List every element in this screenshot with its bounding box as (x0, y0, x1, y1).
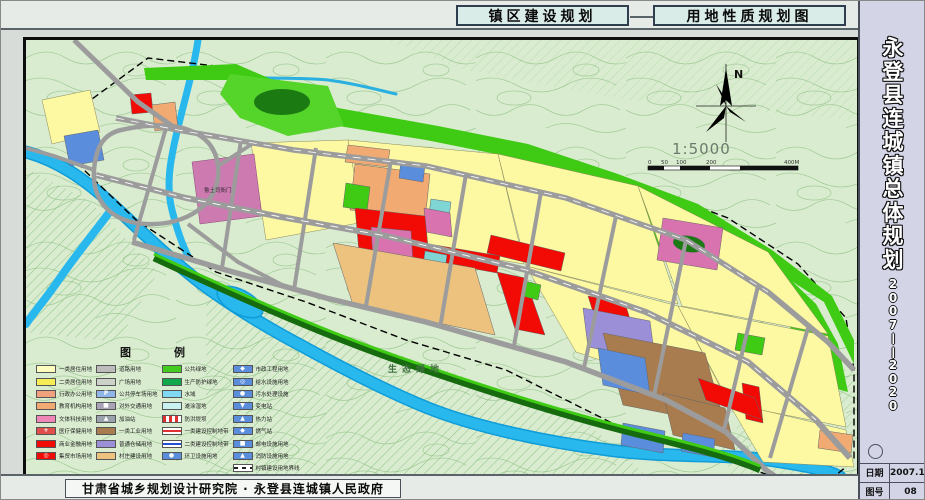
legend-label: 防洪堤坝 (185, 415, 207, 423)
legend-label: 污水处理设施 (256, 390, 289, 398)
historic-site-label: 鲁土司衙门 (204, 186, 232, 194)
footer-strip: 甘肃省城乡规划设计研究院 · 永登县连城镇人民政府 (1, 474, 858, 500)
scale-tick: 400M (784, 160, 799, 166)
legend-swatch: P (96, 390, 116, 398)
scale-tick: 100 (676, 160, 687, 166)
legend-item: ▲加油站 (96, 413, 158, 425)
vertical-title-char: 总 (883, 178, 904, 202)
legend-label: 加油站 (119, 415, 136, 423)
eco-green-label: 生态绿地 (388, 363, 444, 375)
header-strip: 镇区建设规划 用地性质规划图 (1, 1, 858, 30)
legend-swatch (96, 378, 116, 386)
legend-columns: 一类居住用地二类居住用地行政办公用地教育机构用地文体科技用地+医疗保健用地商业金… (36, 363, 312, 475)
legend-column: 公共绿地生产防护绿地水域滩涂湿地防洪堤坝一类建设控制地带二类建设控制地带●环卫设… (162, 363, 229, 475)
legend-label: 热力站 (256, 415, 273, 423)
legend-swatch (96, 365, 116, 373)
north-label: N (734, 68, 743, 81)
vertical-plan-period: 2007——2020 (860, 278, 925, 413)
legend-item: ▼变电站 (233, 400, 300, 412)
legend-label: 公共绿地 (185, 365, 207, 373)
legend-label: 行政办公用地 (59, 390, 92, 398)
legend-item: 生产防护绿地 (162, 375, 229, 387)
vertical-title-char: 永 (883, 37, 904, 61)
legend-item: 二类建设控制地带 (162, 437, 229, 449)
legend-item: 村镇建设用地界线 (233, 462, 300, 474)
legend-item: 二类居住用地 (36, 375, 92, 387)
legend-item: ◆市政工程用地 (233, 363, 300, 375)
legend-swatch (162, 440, 182, 448)
legend-swatch (96, 452, 116, 460)
legend-label: 二类建设控制地带 (185, 440, 229, 448)
legend-item: 普通仓储用地 (96, 437, 158, 449)
legend-column: 道路用地广场用地P公共停车场用地■对外交通用地▲加油站一类工业用地普通仓储用地村… (96, 363, 158, 475)
legend-label: 消防设施用地 (256, 452, 289, 460)
legend-label: 文体科技用地 (59, 415, 92, 423)
sheet-title-left: 镇区建设规划 (456, 5, 629, 26)
legend-item: 文体科技用地 (36, 413, 92, 425)
legend-swatch (36, 390, 56, 398)
seal-icon (868, 444, 883, 459)
legend-swatch (162, 427, 182, 435)
legend-item: ◆燃气站 (233, 425, 300, 437)
legend-label: 给水设施用地 (256, 378, 289, 386)
legend-swatch: ▼ (233, 402, 253, 410)
legend-swatch (162, 378, 182, 386)
vertical-period-char: — (886, 346, 900, 358)
legend-label: 水域 (185, 390, 196, 398)
legend-item: 防洪堤坝 (162, 413, 229, 425)
legend-label: 变电站 (256, 402, 273, 410)
vertical-period-char: 0 (889, 400, 897, 414)
legend-item: 商业金融用地 (36, 437, 92, 449)
legend-label: 普通仓储用地 (119, 440, 152, 448)
legend-label: 邮电设施用地 (256, 440, 289, 448)
legend-swatch (36, 415, 56, 423)
scale-tick: 50 (661, 160, 668, 166)
vertical-title-char: 划 (883, 249, 904, 273)
legend-swatch (162, 415, 182, 423)
legend-swatch (96, 440, 116, 448)
vertical-period-char: 2 (889, 278, 897, 292)
legend-item: ◎集贸市场用地 (36, 450, 92, 462)
credit-box: 甘肃省城乡规划设计研究院 · 永登县连城镇人民政府 (65, 479, 401, 498)
legend-label: 道路用地 (119, 365, 141, 373)
legend-label: 医疗保健用地 (59, 427, 92, 435)
vertical-title-char: 城 (883, 131, 904, 155)
vertical-plan-title: 永登县连城镇总体规划 (860, 37, 925, 272)
vertical-period-char: 0 (889, 305, 897, 319)
legend-item: 一类居住用地 (36, 363, 92, 375)
parcel (424, 208, 452, 237)
vertical-period-char: 2 (889, 386, 897, 400)
vertical-title-char: 县 (883, 84, 904, 108)
legend-label: 一类建设控制地带 (185, 427, 229, 435)
vertical-title-char: 体 (883, 202, 904, 226)
planning-sheet: 镇区建设规划 用地性质规划图 (0, 0, 925, 500)
info-cell: 08 (890, 483, 925, 500)
legend-swatch (36, 378, 56, 386)
legend-label: 环卫设施用地 (185, 452, 218, 460)
legend-label: 村镇建设用地界线 (256, 464, 300, 472)
scale-tick: 200 (706, 160, 717, 166)
legend-item: ●环卫设施用地 (162, 450, 229, 462)
legend-swatch: ● (233, 390, 253, 398)
legend-item: 一类工业用地 (96, 425, 158, 437)
legend-label: 村庄建设用地 (119, 452, 152, 460)
legend-item: ◎给水设施用地 (233, 375, 300, 387)
sheet-info-table: 日期2007.11图号08 (860, 463, 925, 500)
legend-item: ■邮电设施用地 (233, 437, 300, 449)
legend-swatch: ◎ (233, 378, 253, 386)
map-legend: 图 例 一类居住用地二类居住用地行政办公用地教育机构用地文体科技用地+医疗保健用… (36, 344, 312, 475)
legend-swatch (162, 402, 182, 410)
vertical-period-char: 0 (889, 373, 897, 387)
legend-swatch (96, 427, 116, 435)
legend-swatch (36, 365, 56, 373)
legend-swatch (36, 440, 56, 448)
scale-tick: 0 (648, 160, 652, 166)
legend-item: 滩涂湿地 (162, 400, 229, 412)
legend-item: 公共绿地 (162, 363, 229, 375)
legend-label: 一类工业用地 (119, 427, 152, 435)
legend-swatch: ■ (233, 440, 253, 448)
title-connector-line (630, 16, 653, 18)
legend-label: 滩涂湿地 (185, 402, 207, 410)
legend-item: 村庄建设用地 (96, 450, 158, 462)
legend-swatch: ◎ (36, 452, 56, 460)
legend-item: ■对外交通用地 (96, 400, 158, 412)
vertical-period-char: — (886, 333, 900, 345)
legend-swatch: ◆ (233, 365, 253, 373)
legend-swatch (162, 365, 182, 373)
legend-swatch (162, 390, 182, 398)
vertical-title-char: 登 (883, 61, 904, 85)
legend-label: 一类居住用地 (59, 365, 92, 373)
title-sidebar: 永登县连城镇总体规划 2007——2020 日期2007.11图号08 (858, 1, 925, 500)
legend-swatch: ▲ (96, 415, 116, 423)
parcel (343, 183, 370, 211)
info-cell: 2007.11 (890, 464, 925, 483)
legend-item: ▲热力站 (233, 413, 300, 425)
legend-label: 集贸市场用地 (59, 452, 92, 460)
legend-label: 广场用地 (119, 378, 141, 386)
legend-item: 一类建设控制地带 (162, 425, 229, 437)
legend-label: 商业金融用地 (59, 440, 92, 448)
legend-swatch (233, 464, 253, 472)
vertical-title-char: 规 (883, 225, 904, 249)
legend-item: ●污水处理设施 (233, 388, 300, 400)
legend-column: 一类居住用地二类居住用地行政办公用地教育机构用地文体科技用地+医疗保健用地商业金… (36, 363, 92, 475)
legend-item: +医疗保健用地 (36, 425, 92, 437)
legend-swatch: ● (162, 452, 182, 460)
legend-item: P公共停车场用地 (96, 388, 158, 400)
map-panel: 生态绿地 鲁土司衙门 N 1:5000 050100200400M (23, 37, 860, 480)
vertical-period-char: 2 (889, 359, 897, 373)
scale-text: 1:5000 (672, 140, 731, 158)
legend-item: 水域 (162, 388, 229, 400)
legend-label: 市政工程用地 (256, 365, 289, 373)
legend-label: 对外交通用地 (119, 402, 152, 410)
legend-item: ▲消防设施用地 (233, 450, 300, 462)
legend-column: ◆市政工程用地◎给水设施用地●污水处理设施▼变电站▲热力站◆燃气站■邮电设施用地… (233, 363, 300, 475)
vertical-title-char: 镇 (883, 155, 904, 179)
legend-swatch: ◆ (233, 427, 253, 435)
info-cell: 图号 (860, 483, 890, 500)
legend-swatch: ■ (96, 402, 116, 410)
legend-swatch: ▲ (233, 452, 253, 460)
legend-label: 生产防护绿地 (185, 378, 218, 386)
legend-item: 教育机构用地 (36, 400, 92, 412)
info-cell: 日期 (860, 464, 890, 483)
legend-title: 图 例 (36, 344, 312, 360)
legend-swatch: + (36, 427, 56, 435)
vertical-period-char: 7 (889, 319, 897, 333)
legend-label: 教育机构用地 (59, 402, 92, 410)
legend-item: 广场用地 (96, 375, 158, 387)
legend-label: 公共停车场用地 (119, 390, 158, 398)
legend-label: 二类居住用地 (59, 378, 92, 386)
sheet-title-right: 用地性质规划图 (653, 5, 846, 26)
vertical-period-char: 0 (889, 292, 897, 306)
legend-swatch: ▲ (233, 415, 253, 423)
legend-item: 道路用地 (96, 363, 158, 375)
legend-label: 燃气站 (256, 427, 273, 435)
legend-swatch (36, 402, 56, 410)
vertical-title-char: 连 (883, 108, 904, 132)
legend-item: 行政办公用地 (36, 388, 92, 400)
